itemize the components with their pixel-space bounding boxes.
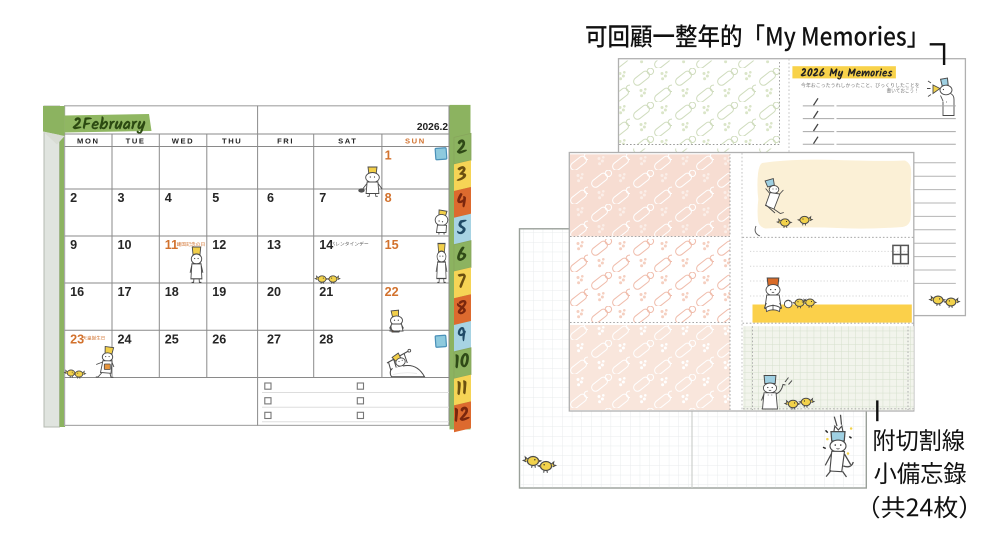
svg-text:21: 21 [319,285,333,299]
svg-text:5: 5 [212,191,219,205]
svg-text:26: 26 [212,333,226,347]
svg-text:8: 8 [385,191,392,205]
svg-text:7: 7 [319,191,326,205]
svg-text:4: 4 [165,191,172,205]
svg-text:24: 24 [118,333,132,347]
svg-text:10: 10 [118,238,132,252]
svg-text:15: 15 [385,238,399,252]
svg-text:22: 22 [385,285,399,299]
svg-text:11: 11 [165,238,178,252]
svg-text:FRI: FRI [277,137,294,146]
svg-text:2: 2 [70,191,77,205]
svg-text:16: 16 [70,285,84,299]
svg-text:WED: WED [172,137,195,146]
svg-text:17: 17 [118,285,132,299]
svg-text:28: 28 [319,333,333,347]
svg-text:SUN: SUN [405,137,426,146]
svg-text:19: 19 [212,285,226,299]
svg-text:SAT: SAT [338,137,357,146]
svg-text:12: 12 [212,238,226,252]
svg-text:MON: MON [77,137,100,146]
svg-text:20: 20 [267,285,281,299]
svg-text:25: 25 [165,333,179,347]
svg-text:27: 27 [267,333,281,347]
svg-text:23: 23 [70,333,84,347]
svg-text:2026.2: 2026.2 [417,122,448,133]
svg-text:13: 13 [267,238,281,252]
svg-text:9: 9 [70,238,77,252]
svg-text:18: 18 [165,285,179,299]
svg-text:1: 1 [385,149,392,163]
svg-text:3: 3 [118,191,125,205]
svg-text:6: 6 [267,191,274,205]
svg-text:THU: THU [222,137,242,146]
svg-text:TUE: TUE [126,137,146,146]
